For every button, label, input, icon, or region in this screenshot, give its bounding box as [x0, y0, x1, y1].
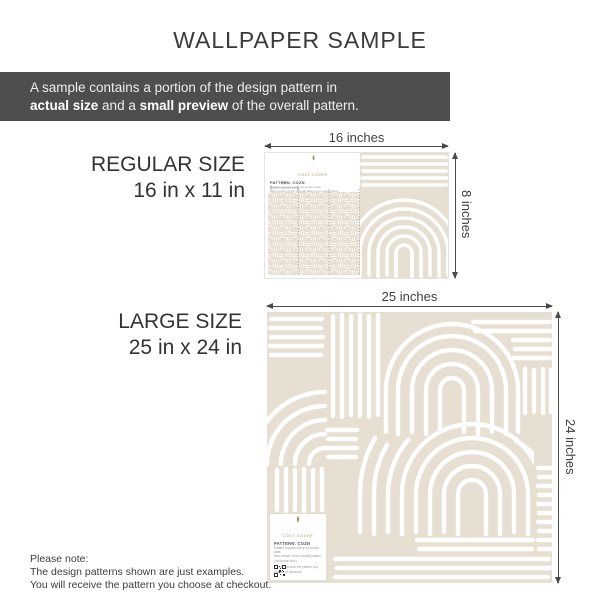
page-title: WALLPAPER SAMPLE [0, 27, 600, 54]
sample-info-card: COZY COVER PATTERN: COZN Pattern repeats… [265, 153, 360, 192]
brand-name: COZY COVER [270, 173, 356, 177]
mini-pattern-preview [268, 192, 360, 275]
regular-size-heading: REGULAR SIZE 16 in x 11 in [91, 152, 245, 204]
regular-size-dimensions: 16 in x 11 in [91, 178, 245, 204]
banner-line-2: actual size and a small preview of the o… [30, 97, 450, 115]
wallpaper-sample-infographic: WALLPAPER SAMPLE A sample contains a por… [0, 0, 600, 600]
large-size-name: LARGE SIZE [118, 309, 242, 335]
footer-line-1: Please note: [30, 553, 271, 566]
large-width-dimension-label: 25 inches [267, 289, 552, 304]
card-info-line: Pattern repeats every 24 inches wide. [274, 546, 322, 555]
large-sample-image: COZY COVER PATTERN: COZN Pattern repeats… [267, 312, 552, 583]
brand-logo-icon [311, 155, 316, 161]
card-info-line: Mini version of the overall pattern (not… [274, 554, 322, 563]
brand-block: COZY COVER [270, 155, 356, 177]
banner-bold-small-preview: small preview [140, 98, 229, 113]
brand-logo-icon [295, 516, 301, 523]
qr-code [274, 565, 286, 577]
regular-size-name: REGULAR SIZE [91, 152, 245, 178]
regular-height-dimension-label: 8 inches [459, 190, 474, 238]
banner-bold-actual-size: actual size [30, 98, 98, 113]
large-size-heading: LARGE SIZE 25 in x 24 in [118, 309, 242, 361]
info-banner: A sample contains a portion of the desig… [0, 72, 450, 121]
banner-text-segment: and a [98, 98, 139, 113]
regular-width-dimension-arrow [265, 146, 448, 147]
footer-note: Please note: The design patterns shown a… [30, 553, 271, 592]
banner-line-1: A sample contains a portion of the desig… [30, 79, 450, 97]
large-height-dimension-label: 24 inches [563, 419, 578, 475]
regular-width-dimension-label: 16 inches [265, 130, 448, 145]
sample-info-card: COZY COVER PATTERN: COZN Pattern repeats… [269, 513, 327, 581]
banner-text-segment: of the overall pattern. [228, 98, 359, 113]
footer-line-3: You will receive the pattern you choose … [30, 579, 271, 592]
large-height-dimension-arrow [558, 312, 559, 583]
large-size-dimensions: 25 in x 24 in [118, 335, 242, 361]
brand-block: COZY COVER [274, 516, 322, 538]
brand-name: COZY COVER [274, 534, 322, 538]
footer-line-2: The design patterns shown are just examp… [30, 566, 271, 579]
regular-height-dimension-arrow [455, 153, 456, 278]
regular-sample-image: 24" COZY COVER PATTERN: COZN Pattern rep… [265, 153, 448, 278]
large-width-dimension-arrow [267, 306, 552, 307]
card-info-line: Mini version of the overall pattern (not… [270, 189, 356, 193]
